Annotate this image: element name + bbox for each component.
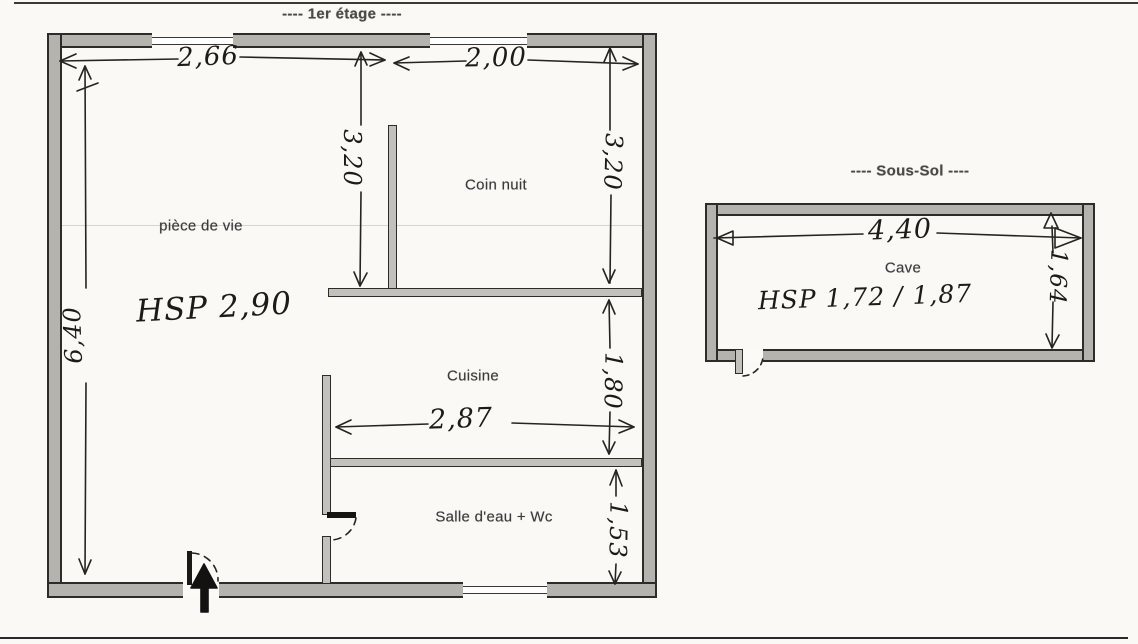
window-bottom-icon bbox=[463, 586, 547, 594]
wall-top bbox=[47, 33, 657, 48]
dim-label-kitchen-width: 2,87 bbox=[428, 404, 493, 433]
room-label-kitchen: Cuisine bbox=[447, 369, 499, 384]
wall-right bbox=[642, 33, 657, 598]
bath-door-swing-arc bbox=[331, 518, 356, 540]
wall-bottom bbox=[47, 582, 657, 598]
dim-label-kitchen-depth: 1,80 bbox=[601, 352, 626, 410]
cave-door-jamb bbox=[735, 349, 743, 374]
dim-label-bath-depth: 1,53 bbox=[606, 501, 631, 559]
cave-wall-bottom bbox=[705, 349, 1095, 362]
first-floor-title: ---- 1er étage ---- bbox=[282, 7, 402, 22]
dim-label-top-left-width: 2,66 bbox=[177, 43, 240, 71]
partition-kitchen-bath bbox=[322, 458, 642, 467]
hsp-note-first-floor: HSP 2,90 bbox=[135, 288, 292, 327]
entrance-door-swing-arc bbox=[192, 553, 218, 581]
scan-fold-line bbox=[50, 225, 656, 226]
dim-label-middle-vertical: 3,20 bbox=[340, 129, 364, 186]
dim-label-left-height: 6,40 bbox=[60, 306, 86, 364]
basement-title: ---- Sous-Sol ---- bbox=[851, 164, 970, 179]
cave-wall-right bbox=[1082, 203, 1095, 362]
hsp-note-cave: HSP 1,72 / 1,87 bbox=[757, 281, 972, 313]
dim-label-cave-width: 4,40 bbox=[867, 215, 932, 244]
bath-door-leaf bbox=[327, 512, 356, 518]
dim-label-right-vertical: 3,20 bbox=[600, 133, 626, 191]
dim-label-cave-depth: 1,64 bbox=[1045, 249, 1070, 305]
entrance-door-leaf bbox=[187, 551, 192, 585]
scanned-floor-plan: ---- 1er étage ---- ---- Sous-Sol ---- bbox=[0, 0, 1138, 644]
room-label-cave: Cave bbox=[885, 261, 921, 276]
entrance-door-opening bbox=[183, 582, 219, 598]
cave-wall-left bbox=[705, 203, 718, 362]
partition-night-kitchen bbox=[328, 288, 642, 297]
partition-hall-upper bbox=[322, 375, 331, 515]
room-label-night: Coin nuit bbox=[465, 178, 527, 193]
room-label-living: pièce de vie bbox=[159, 219, 243, 234]
room-label-bath: Salle d'eau + Wc bbox=[435, 510, 552, 525]
page-bottom-edge-line bbox=[0, 637, 1128, 639]
partition-hall-lower bbox=[322, 536, 331, 584]
partition-living-night bbox=[388, 125, 397, 293]
page-top-edge-line bbox=[14, 2, 1138, 4]
dim-label-top-right-width: 2,00 bbox=[465, 44, 527, 71]
